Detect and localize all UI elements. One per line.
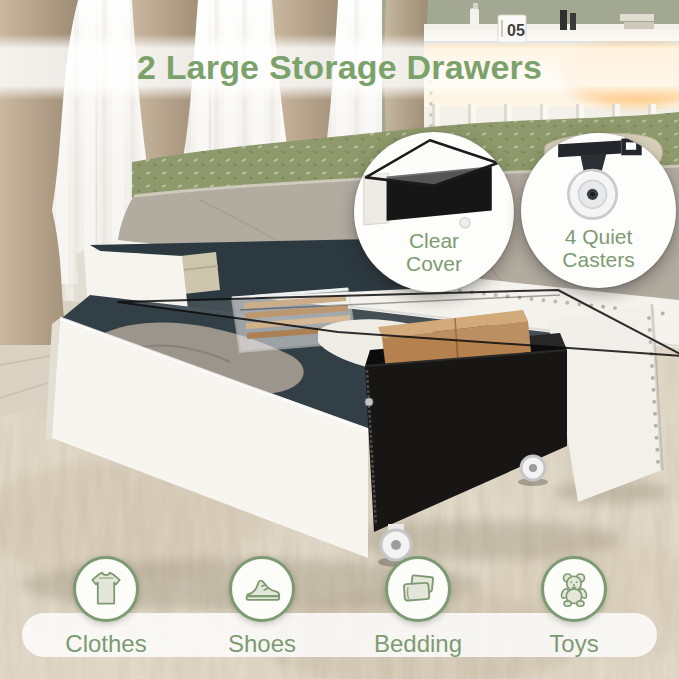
teddy-bear-icon <box>554 569 594 609</box>
shoe-icon <box>242 569 282 609</box>
category-clothes: Clothes <box>46 556 166 658</box>
page-title: 2 Large Storage Drawers <box>137 48 542 87</box>
bedding-icon <box>398 569 438 609</box>
toys-badge <box>541 556 607 622</box>
callout-casters: 4 Quiet Casters <box>521 133 676 288</box>
shoes-label: Shoes <box>228 630 296 658</box>
clear-cover-label: Clear Cover <box>406 230 462 275</box>
callout-clear-cover: Clear Cover <box>354 132 514 292</box>
caster-illustration <box>534 133 664 226</box>
bottle-decor <box>470 8 479 30</box>
shoes-badge <box>229 556 295 622</box>
category-toys: Toys <box>514 556 634 658</box>
tshirt-icon <box>86 569 126 609</box>
title-banner: 2 Large Storage Drawers <box>0 34 679 100</box>
category-shoes: Shoes <box>202 556 322 658</box>
bedding-badge <box>385 556 451 622</box>
category-bedding: Bedding <box>358 556 478 658</box>
clothes-label: Clothes <box>65 630 146 658</box>
casters-label: 4 Quiet Casters <box>562 226 634 271</box>
bedding-label: Bedding <box>374 630 462 658</box>
toys-label: Toys <box>549 630 598 658</box>
product-infographic: 05 <box>0 0 679 679</box>
clothes-badge <box>73 556 139 622</box>
